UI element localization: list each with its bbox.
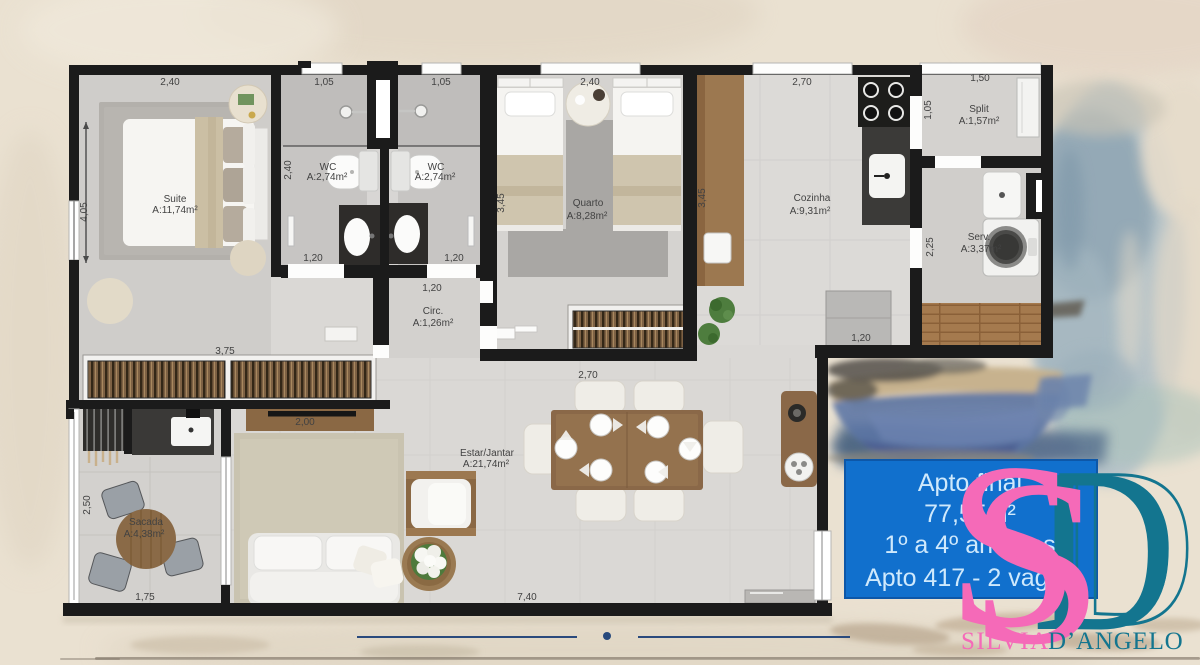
svg-text:Split: Split <box>969 104 989 115</box>
svg-text:A:4,38m²: A:4,38m² <box>124 529 165 540</box>
svg-text:A:11,74m²: A:11,74m² <box>152 205 198 216</box>
svg-text:1,05: 1,05 <box>314 77 334 88</box>
svg-text:A:3,37m²: A:3,37m² <box>961 244 1002 255</box>
svg-text:Estar/Jantar: Estar/Jantar <box>460 448 515 459</box>
svg-text:2,40: 2,40 <box>160 77 180 88</box>
svg-text:2,00: 2,00 <box>295 417 315 428</box>
svg-text:2,25: 2,25 <box>925 237 936 257</box>
svg-text:1,05: 1,05 <box>923 100 934 120</box>
svg-text:A:1,26m²: A:1,26m² <box>413 318 454 329</box>
svg-text:A:8,28m²: A:8,28m² <box>567 211 608 222</box>
svg-text:SILVIA: SILVIA <box>961 628 1050 655</box>
svg-text:3,75: 3,75 <box>215 346 235 357</box>
svg-text:3,45: 3,45 <box>697 188 708 208</box>
svg-text:2,70: 2,70 <box>578 370 598 381</box>
svg-text:Suite: Suite <box>164 194 187 205</box>
svg-text:Sacada: Sacada <box>129 517 163 528</box>
svg-text:1,50: 1,50 <box>970 73 990 84</box>
svg-text:Quarto: Quarto <box>573 198 604 209</box>
svg-text:7,40: 7,40 <box>517 592 537 603</box>
svg-text:2,40: 2,40 <box>283 160 294 180</box>
svg-text:Cozinha: Cozinha <box>794 193 831 204</box>
svg-text:A:21,74m²: A:21,74m² <box>463 459 510 470</box>
svg-text:1,20: 1,20 <box>444 253 464 264</box>
svg-text:3,45: 3,45 <box>496 193 507 213</box>
svg-text:A:9,31m²: A:9,31m² <box>790 206 831 217</box>
svg-text:A:2,74m²: A:2,74m² <box>307 172 348 183</box>
svg-text:2,70: 2,70 <box>792 77 812 88</box>
svg-text:1,75: 1,75 <box>135 592 155 603</box>
svg-text:1,20: 1,20 <box>851 333 871 344</box>
svg-text:2,50: 2,50 <box>82 495 93 515</box>
svg-text:D’ANGELO: D’ANGELO <box>1048 628 1184 655</box>
svg-text:A:1,57m²: A:1,57m² <box>959 116 1000 127</box>
svg-text:1,05: 1,05 <box>431 77 451 88</box>
svg-text:2,40: 2,40 <box>580 77 600 88</box>
svg-text:A:2,74m²: A:2,74m² <box>415 172 456 183</box>
svg-text:1,20: 1,20 <box>422 283 442 294</box>
svg-text:Circ.: Circ. <box>423 306 444 317</box>
svg-text:1,20: 1,20 <box>303 253 323 264</box>
svg-text:4,05: 4,05 <box>79 202 90 222</box>
svg-text:Serv.: Serv. <box>968 232 991 243</box>
